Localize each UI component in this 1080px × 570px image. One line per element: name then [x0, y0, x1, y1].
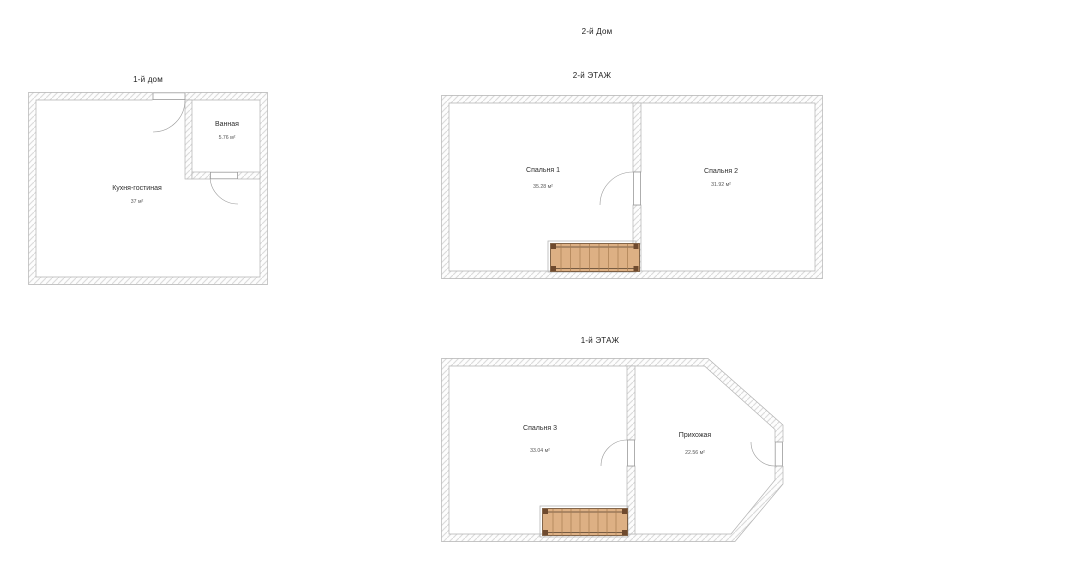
plan-title-floor1: 1-й ЭТАЖ: [581, 336, 620, 345]
divider-wall-upper: [627, 366, 635, 440]
floorplan-house1: Ванная 5.76 м² Кухня-гостиная 37 м²: [28, 92, 268, 285]
bedroom-door-leaf: [633, 172, 640, 205]
bathroom-wall-vertical: [185, 100, 192, 179]
entrance-door-leaf: [153, 93, 185, 100]
divider-wall-upper: [633, 103, 641, 172]
floorplan-floor1: Спальня 3 33.04 м² Прихожая 22.56 м²: [441, 358, 786, 544]
hallway-door-leaf: [775, 442, 782, 466]
floorplan-floor2: Спальня 1 35.28 м² Спальня 2 31.92 м²: [441, 95, 823, 279]
document-title: 2-й Дом: [582, 27, 613, 36]
room-label-bedroom1: Спальня 1: [526, 167, 560, 174]
room-area-bedroom3: 33.04 м²: [530, 448, 550, 454]
room-label-bathroom: Ванная: [215, 121, 239, 128]
bathroom-door-arc: [210, 176, 238, 204]
room-area-kitchen: 37 м²: [131, 199, 144, 205]
plan-title-floor2: 2-й ЭТАЖ: [573, 71, 612, 80]
room-area-bedroom2: 31.92 м²: [711, 182, 731, 188]
room-label-kitchen: Кухня-гостиная: [112, 185, 162, 192]
bedroom-door-arc: [601, 440, 627, 466]
room-label-hallway: Прихожая: [679, 432, 712, 439]
entrance-door-arc: [153, 100, 185, 132]
hallway-door-arc: [751, 442, 775, 466]
bedroom-door-leaf: [627, 440, 634, 466]
stairs: [540, 506, 628, 537]
room-label-bedroom3: Спальня 3: [523, 425, 557, 432]
plan-title-house1: 1-й дом: [133, 75, 163, 84]
room-label-bedroom2: Спальня 2: [704, 168, 738, 175]
floorplan-canvas: 2-й Дом 1-й дом Ванная 5.76 м² Кухня-гос…: [0, 0, 1080, 570]
room-area-hallway: 22.56 м²: [685, 450, 705, 456]
stairs: [548, 241, 640, 272]
bathroom-door-leaf: [210, 172, 237, 179]
bedroom-door-arc: [600, 172, 633, 205]
room-area-bedroom1: 35.28 м²: [533, 184, 553, 190]
room-area-bathroom: 5.76 м²: [219, 135, 236, 141]
